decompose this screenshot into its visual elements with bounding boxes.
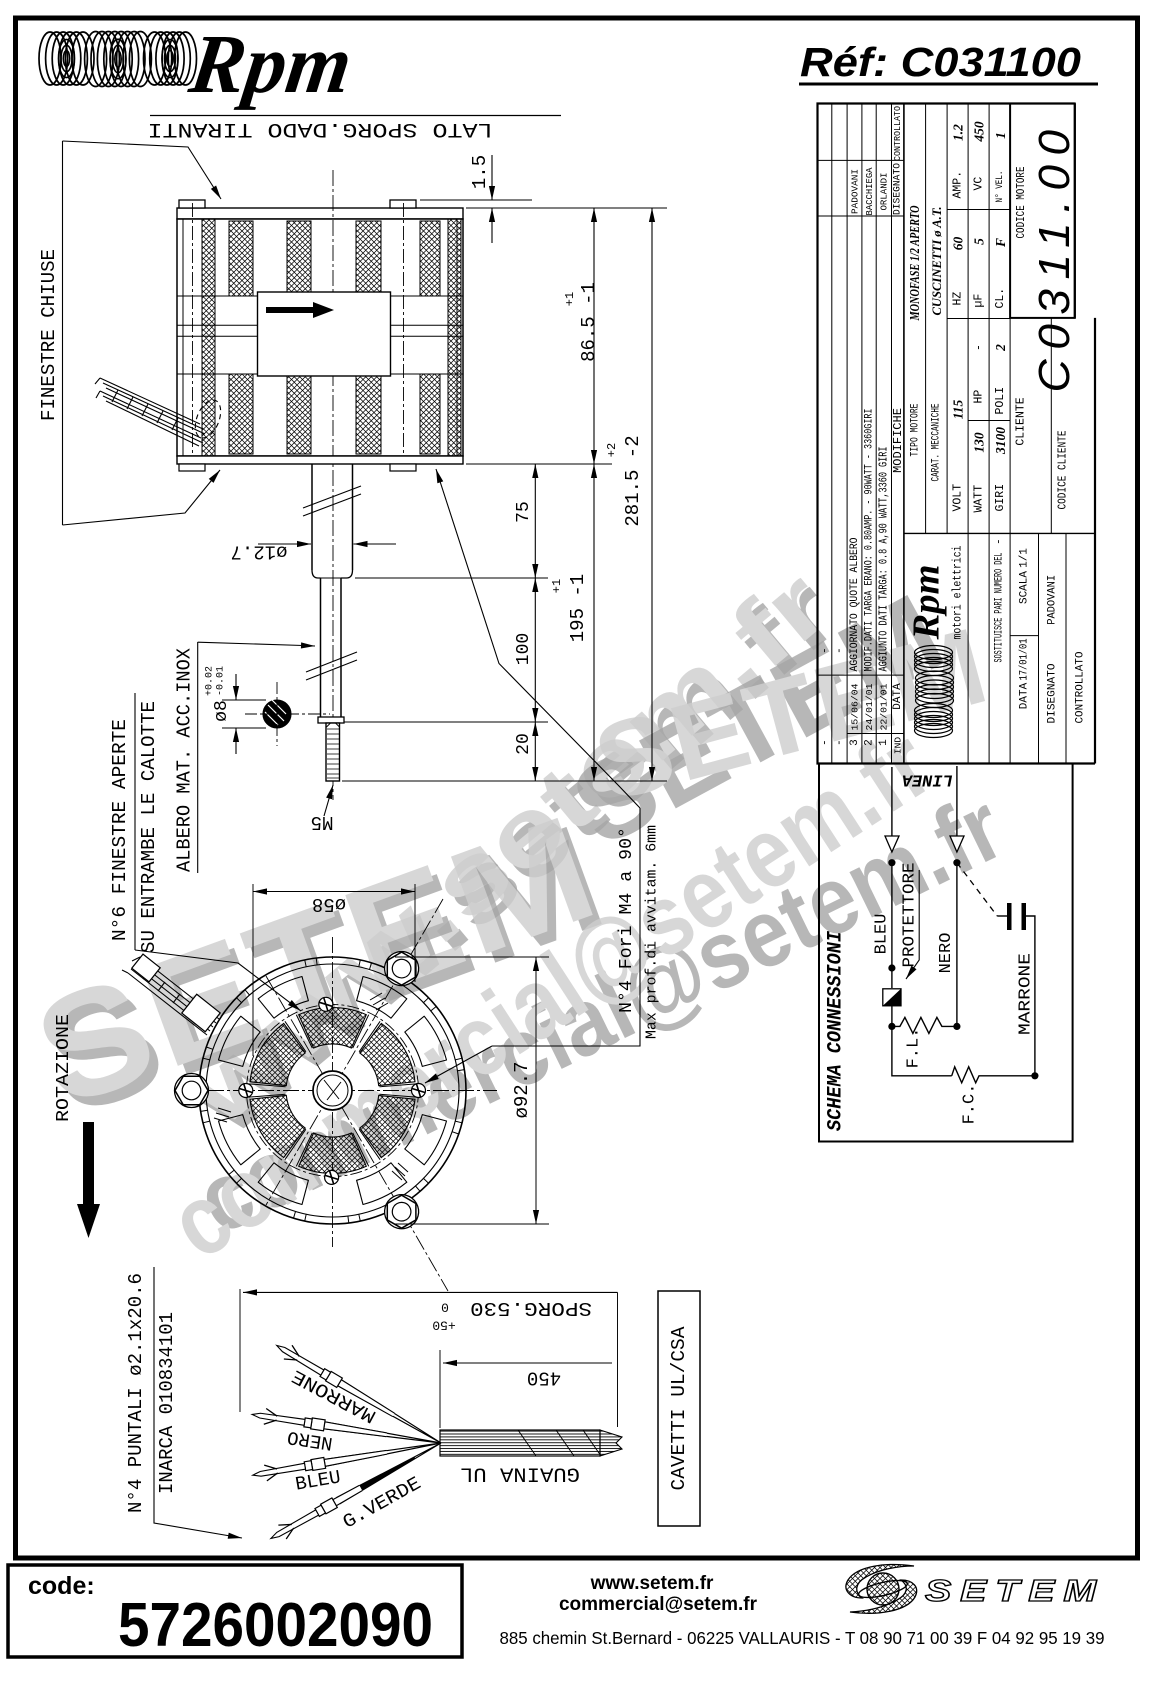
svg-text:commercial@setem.fr: commercial@setem.fr xyxy=(559,1594,758,1615)
svg-text:+1: +1 xyxy=(563,292,577,306)
svg-text:SOSTITUISCE PARI NUMERO DEL: SOSTITUISCE PARI NUMERO DEL xyxy=(994,553,1006,663)
svg-text:SU ENTRAMBE LE CALOTTE: SU ENTRAMBE LE CALOTTE xyxy=(138,701,160,953)
svg-text:Max prof.di avvitam. 6mm: Max prof.di avvitam. 6mm xyxy=(644,825,661,1039)
svg-text:Réf: C031100: Réf: C031100 xyxy=(800,39,1081,85)
svg-text:HP: HP xyxy=(972,390,985,404)
svg-text:LATO SPORG.DADO TIRANTI: LATO SPORG.DADO TIRANTI xyxy=(148,117,493,140)
svg-text:HZ: HZ xyxy=(951,292,964,306)
svg-text:195 -1: 195 -1 xyxy=(567,574,589,642)
svg-text:ø92.7: ø92.7 xyxy=(511,1061,533,1118)
svg-text:885 chemin St.Bernard - 0622: 885 chemin St.Bernard - 06225 VALLAURIS … xyxy=(500,1628,1105,1648)
svg-text:INARCA 010834101: INARCA 010834101 xyxy=(156,1312,178,1494)
svg-text:-: - xyxy=(819,739,831,746)
svg-text:BACCHIEGA: BACCHIEGA xyxy=(864,167,875,215)
svg-text:CODICE CLIENTE: CODICE CLIENTE xyxy=(1057,430,1070,509)
svg-text:450: 450 xyxy=(527,1367,561,1389)
svg-text:5: 5 xyxy=(971,238,986,245)
svg-text:MARRONE: MARRONE xyxy=(1016,953,1035,1035)
svg-text:N°4 Fori M4 a 90°: N°4 Fori M4 a 90° xyxy=(617,827,637,1013)
svg-text:20: 20 xyxy=(514,733,534,755)
svg-text:N°6 FINESTRE APERTE: N°6 FINESTRE APERTE xyxy=(109,719,131,941)
svg-text:1.5: 1.5 xyxy=(469,155,491,189)
svg-text:GUAINA UL: GUAINA UL xyxy=(460,1462,580,1485)
svg-text:CL.: CL. xyxy=(994,288,1007,309)
svg-text:code:: code: xyxy=(28,1572,95,1600)
svg-text:MODIFICHE: MODIFICHE xyxy=(891,408,905,473)
svg-text:+50: +50 xyxy=(432,1318,455,1333)
svg-text:AGGIUNTO DATI TARGA: 0.8 A,90: AGGIUNTO DATI TARGA: 0.8 A,90 WATT,3360 … xyxy=(878,447,891,672)
svg-text:281.5 -2: 281.5 -2 xyxy=(622,435,644,526)
svg-text:PADOVANI: PADOVANI xyxy=(850,169,861,214)
svg-text:3100: 3100 xyxy=(993,427,1008,455)
svg-text:+2: +2 xyxy=(605,443,619,457)
svg-text:CAVETTI UL/CSA: CAVETTI UL/CSA xyxy=(668,1326,690,1491)
svg-text:SPORG.530: SPORG.530 xyxy=(470,1297,592,1319)
svg-text:1.2: 1.2 xyxy=(950,124,965,141)
svg-text:AMP.: AMP. xyxy=(951,171,964,199)
svg-text:115: 115 xyxy=(950,400,965,420)
svg-text:+1: +1 xyxy=(550,579,564,593)
svg-text:-: - xyxy=(834,647,846,654)
svg-text:Rpm: Rpm xyxy=(906,565,948,641)
svg-text:F.L.: F.L. xyxy=(905,1028,924,1069)
svg-text:3: 3 xyxy=(849,739,861,746)
svg-text:motori elettrici: motori elettrici xyxy=(952,545,965,639)
svg-text:WATT: WATT xyxy=(972,485,985,513)
svg-text:86.5 -1: 86.5 -1 xyxy=(578,282,600,362)
svg-text:GIRI: GIRI xyxy=(994,484,1007,512)
svg-text:www.setem.fr: www.setem.fr xyxy=(590,1573,714,1594)
svg-text:15/06/04: 15/06/04 xyxy=(850,683,861,730)
svg-text:0: 0 xyxy=(441,1300,449,1315)
svg-text:75: 75 xyxy=(514,501,534,523)
svg-text:2: 2 xyxy=(993,344,1008,352)
svg-text:DISEGNATO: DISEGNATO xyxy=(892,163,903,215)
svg-text:FINESTRE CHIUSE: FINESTRE CHIUSE xyxy=(38,249,60,421)
svg-text:C0311.00: C0311.00 xyxy=(1030,121,1079,393)
svg-text:2: 2 xyxy=(864,739,876,746)
svg-text:CODICE MOTORE: CODICE MOTORE xyxy=(1015,166,1028,238)
svg-text:POLI: POLI xyxy=(994,387,1007,415)
svg-text:MODIF.DATI TARGA ERANO: 0.80AM: MODIF.DATI TARGA ERANO: 0.80AMP. - 90WAT… xyxy=(864,409,876,672)
svg-text:-: - xyxy=(994,538,1006,545)
svg-text:ø58: ø58 xyxy=(312,893,346,915)
svg-text:IND: IND xyxy=(892,737,903,754)
svg-text:ø8: ø8 xyxy=(212,700,232,722)
svg-text:M5: M5 xyxy=(311,811,334,833)
svg-text:SCALA: SCALA xyxy=(1018,571,1030,604)
svg-text:TIPO MOTORE: TIPO MOTORE xyxy=(910,403,922,456)
svg-text:ROTAZIONE: ROTAZIONE xyxy=(54,1014,74,1122)
svg-text:µF: µF xyxy=(972,294,985,308)
svg-text:N°4 PUNTALI ø2.1x20.6: N°4 PUNTALI ø2.1x20.6 xyxy=(125,1273,147,1513)
svg-text:F.C.: F.C. xyxy=(961,1084,980,1125)
svg-text:ORLANDI: ORLANDI xyxy=(879,173,890,211)
svg-text:NERO: NERO xyxy=(937,933,956,974)
svg-text:DISEGNATO: DISEGNATO xyxy=(1046,663,1058,723)
svg-text:1: 1 xyxy=(993,132,1008,139)
svg-text:22/01/01: 22/01/01 xyxy=(879,683,890,730)
svg-text:DATA: DATA xyxy=(1018,682,1030,709)
svg-text:-: - xyxy=(834,739,846,746)
svg-text:-: - xyxy=(819,647,831,654)
svg-text:VC: VC xyxy=(972,177,985,191)
svg-text:N° VEL.: N° VEL. xyxy=(994,171,1006,203)
svg-text:CLIENTE: CLIENTE xyxy=(1015,397,1028,445)
svg-text:1/1: 1/1 xyxy=(1018,548,1030,568)
svg-text:60: 60 xyxy=(950,237,965,251)
svg-text:F: F xyxy=(993,238,1008,248)
svg-text:1: 1 xyxy=(878,739,890,746)
svg-text:VOLT: VOLT xyxy=(951,484,964,512)
svg-text:CUSCINETTI ø A.T.: CUSCINETTI ø A.T. xyxy=(929,207,944,316)
svg-text:5726002090: 5726002090 xyxy=(118,1591,433,1660)
svg-text:SETEM: SETEM xyxy=(925,1573,1105,1608)
svg-text:CONTROLLATO: CONTROLLATO xyxy=(1075,651,1087,723)
svg-text:450: 450 xyxy=(971,121,986,143)
svg-text:100: 100 xyxy=(514,633,534,665)
svg-text:DATA: DATA xyxy=(892,683,904,710)
svg-text:PADOVANI: PADOVANI xyxy=(1046,575,1058,625)
svg-text:SCHEMA CONNESSIONI: SCHEMA CONNESSIONI xyxy=(825,930,848,1131)
svg-text:BLEU: BLEU xyxy=(873,914,892,955)
svg-text:AGGIORNATO QUOTE ALBERO: AGGIORNATO QUOTE ALBERO xyxy=(849,537,861,671)
svg-text:ALBERO MAT. ACC.INOX: ALBERO MAT. ACC.INOX xyxy=(174,647,196,872)
svg-text:130: 130 xyxy=(971,432,986,453)
svg-text:LINEA: LINEA xyxy=(902,770,953,789)
svg-text:CARAT. MECCANICHE: CARAT. MECCANICHE xyxy=(930,403,942,481)
svg-text:24/01/01: 24/01/01 xyxy=(864,683,875,730)
svg-text:Rpm: Rpm xyxy=(183,18,357,111)
svg-text:MONOFASE 1/2 APERTO: MONOFASE 1/2 APERTO xyxy=(907,205,922,321)
svg-text:-0.01: -0.01 xyxy=(216,666,227,696)
svg-text:PROTETTORE: PROTETTORE xyxy=(901,863,920,968)
svg-text:CONTROLLATO: CONTROLLATO xyxy=(893,106,903,161)
svg-text:-: - xyxy=(972,344,985,351)
svg-text:+0.02: +0.02 xyxy=(205,666,216,696)
svg-text:17/01/01: 17/01/01 xyxy=(1018,638,1030,680)
